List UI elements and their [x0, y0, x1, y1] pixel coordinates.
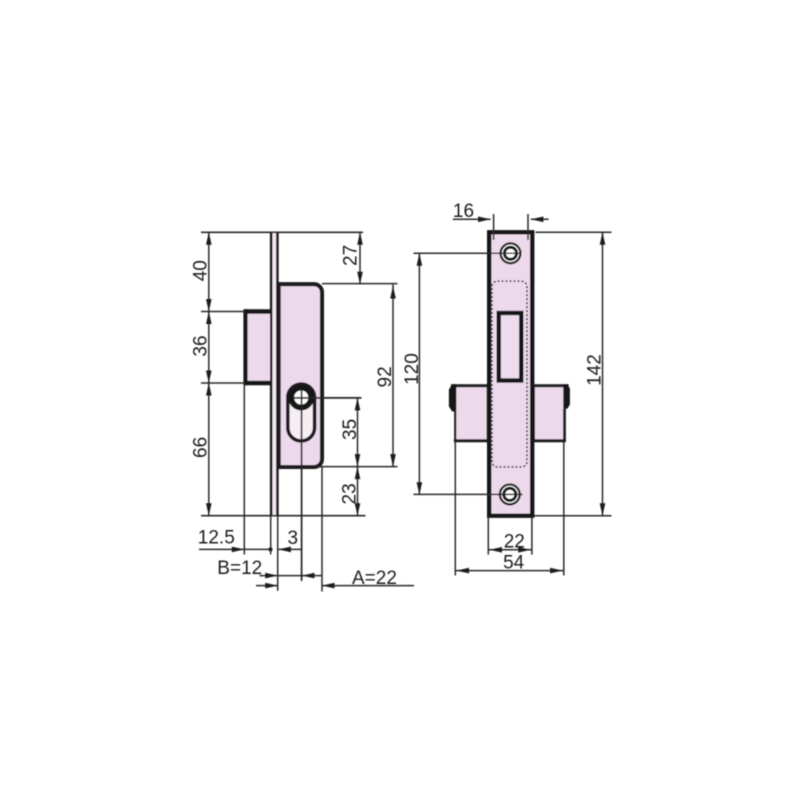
svg-text:36: 36 [190, 335, 211, 356]
svg-text:92: 92 [375, 366, 396, 387]
svg-text:A=22: A=22 [352, 568, 397, 589]
svg-text:35: 35 [340, 419, 361, 440]
svg-text:120: 120 [402, 353, 423, 385]
svg-text:B=12: B=12 [217, 558, 262, 579]
svg-text:3: 3 [288, 528, 299, 549]
svg-text:22: 22 [504, 532, 525, 553]
svg-text:23: 23 [339, 483, 360, 504]
svg-text:27: 27 [341, 245, 362, 266]
svg-text:54: 54 [503, 553, 525, 574]
svg-text:16: 16 [453, 201, 474, 222]
svg-text:142: 142 [585, 354, 606, 386]
svg-text:40: 40 [191, 260, 212, 281]
svg-text:12.5: 12.5 [198, 528, 235, 549]
svg-text:66: 66 [191, 437, 212, 458]
